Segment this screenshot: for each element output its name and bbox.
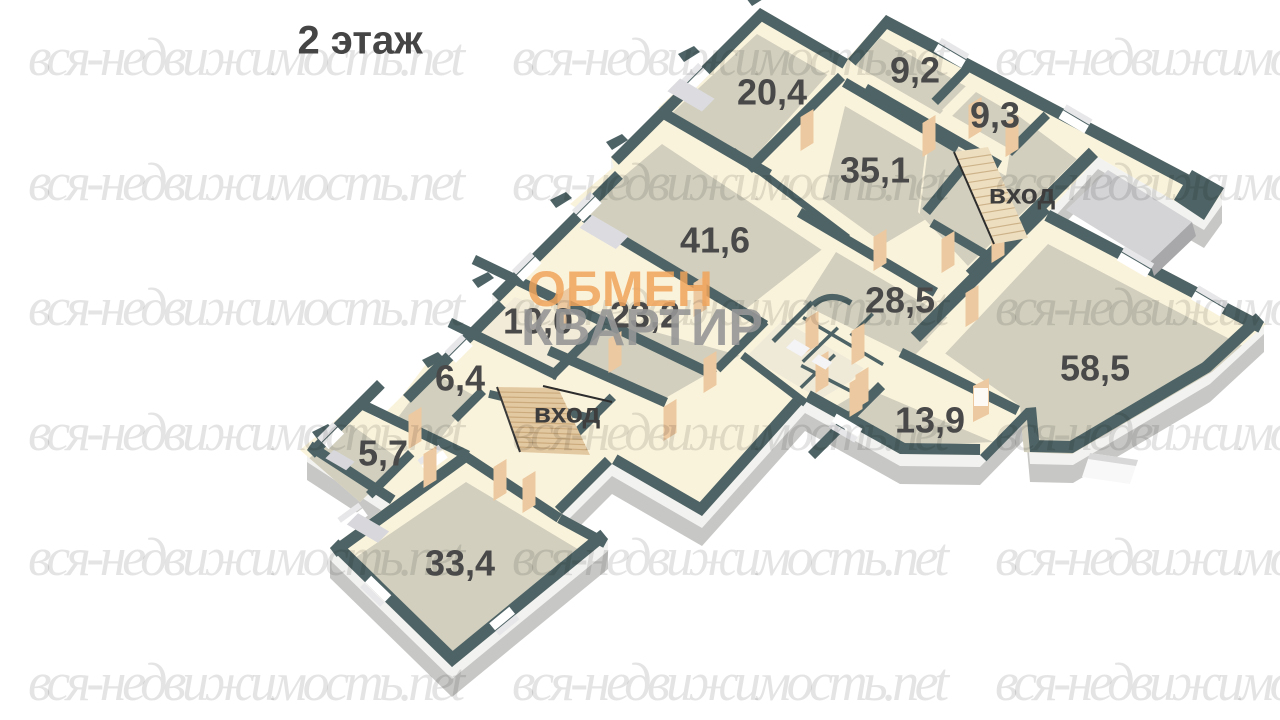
svg-text:вся-недвижимость.net: вся-недвижимость.net: [995, 27, 1280, 87]
svg-text:28,5: 28,5: [865, 280, 935, 321]
svg-text:вся-недвижимость.net: вся-недвижимость.net: [995, 652, 1280, 712]
svg-text:вся-недвижимость.net: вся-недвижимость.net: [512, 652, 951, 712]
svg-text:35,1: 35,1: [840, 150, 910, 191]
svg-text:6,4: 6,4: [435, 358, 485, 399]
svg-text:вся-недвижимость.net: вся-недвижимость.net: [995, 277, 1280, 337]
svg-text:20,4: 20,4: [737, 72, 807, 113]
svg-text:5,7: 5,7: [358, 433, 408, 474]
svg-text:13,9: 13,9: [895, 400, 965, 441]
svg-text:вся-недвижимость.net: вся-недвижимость.net: [512, 27, 951, 87]
svg-text:вся-недвижимость.net: вся-недвижимость.net: [28, 152, 467, 212]
svg-text:КВАРТИР: КВАРТИР: [521, 299, 763, 357]
svg-text:9,3: 9,3: [970, 95, 1020, 136]
svg-text:9,2: 9,2: [890, 50, 940, 91]
svg-text:вся-недвижимость.net: вся-недвижимость.net: [28, 277, 467, 337]
svg-text:вся-недвижимость.net: вся-недвижимость.net: [28, 652, 467, 712]
svg-text:33,4: 33,4: [425, 543, 495, 584]
svg-text:2 этаж: 2 этаж: [297, 19, 423, 63]
svg-text:41,6: 41,6: [680, 220, 750, 261]
svg-text:вся-недвижимость.net: вся-недвижимость.net: [995, 527, 1280, 587]
svg-text:вся-недвижимость.net: вся-недвижимость.net: [28, 527, 467, 587]
svg-text:вход: вход: [534, 397, 601, 428]
svg-text:вся-недвижимость.net: вся-недвижимость.net: [995, 402, 1280, 462]
svg-text:58,5: 58,5: [1060, 348, 1130, 389]
svg-text:вход: вход: [989, 178, 1056, 209]
svg-text:вся-недвижимость.net: вся-недвижимость.net: [512, 527, 951, 587]
